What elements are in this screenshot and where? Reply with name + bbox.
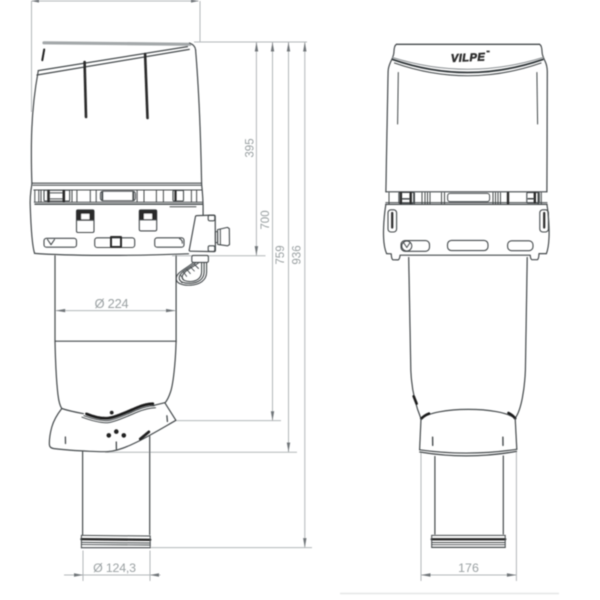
svg-text:176: 176 (458, 561, 479, 575)
svg-text:700: 700 (260, 210, 272, 229)
svg-text:VILPE: VILPE (451, 52, 486, 65)
svg-text:Ø 224: Ø 224 (95, 296, 129, 311)
svg-text:395: 395 (245, 138, 257, 157)
svg-text:759: 759 (275, 245, 287, 264)
svg-text:936: 936 (292, 245, 304, 264)
svg-text:Ø 124,3: Ø 124,3 (93, 561, 136, 575)
